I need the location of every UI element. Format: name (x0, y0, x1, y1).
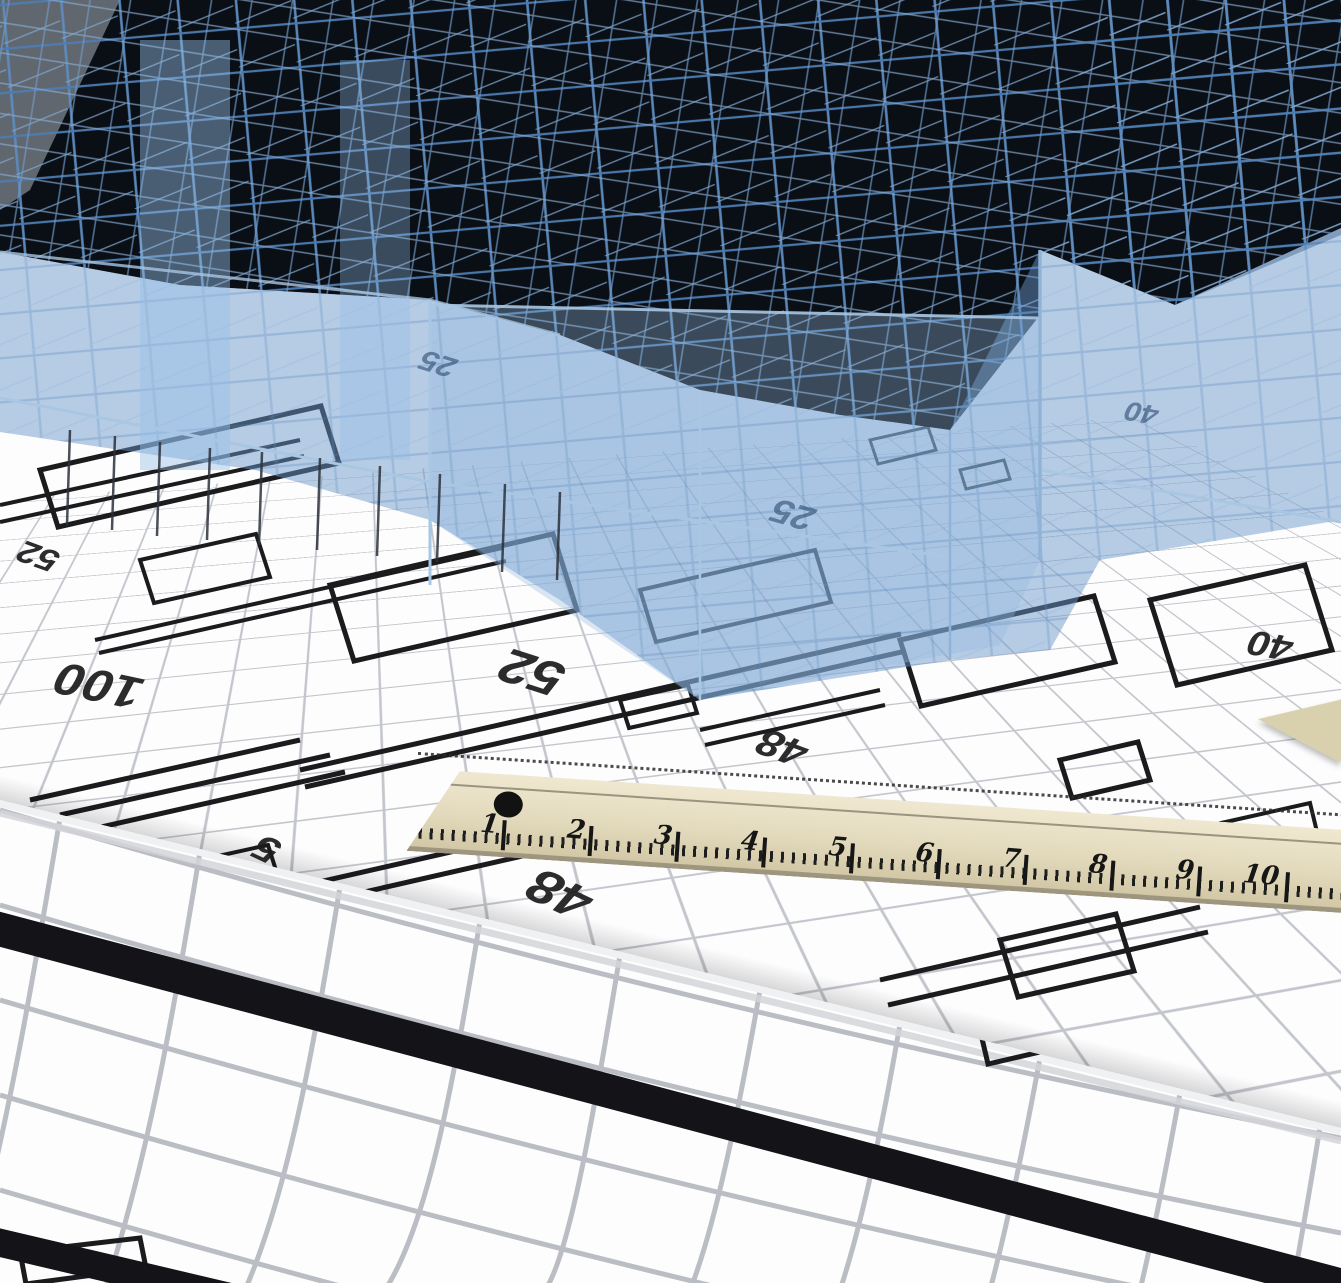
set-square-triangle (1253, 684, 1341, 763)
scene: 25 25 40 (0, 0, 1341, 1283)
ruler-number: 10 (1238, 859, 1280, 891)
